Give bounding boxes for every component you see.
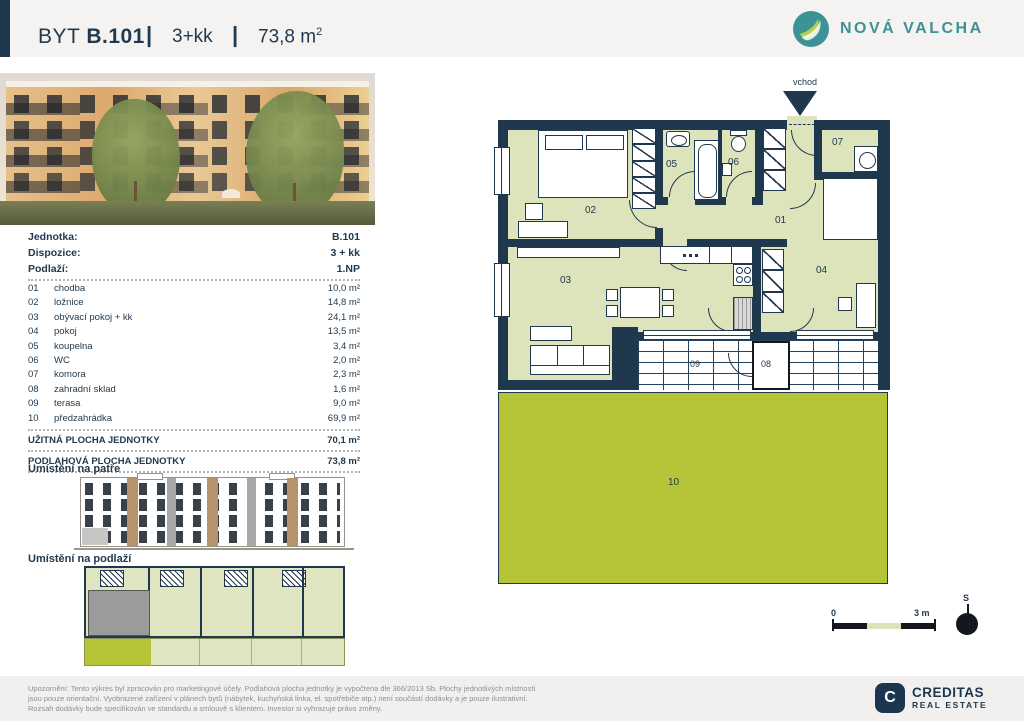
room-area: 13,5 m² (328, 326, 360, 337)
terrace-window (643, 330, 751, 340)
washing-machine-drum (859, 152, 876, 169)
side-table (838, 297, 852, 311)
window (494, 147, 510, 195)
dotted-divider (28, 279, 360, 281)
room-number: 05 (28, 341, 54, 352)
room-number: 09 (28, 398, 54, 409)
meta-row: Podlaží:1.NP (28, 261, 360, 277)
photo-roofline (6, 81, 369, 87)
room-name: obývací pokoj + kk (54, 312, 328, 323)
scale-end-label: 3 m (914, 608, 930, 618)
compass-north-label: S (963, 593, 969, 603)
overview-unit-divider (302, 568, 304, 636)
meta-row: Jednotka:B.101 (28, 229, 360, 245)
meta-label: Dispozice: (28, 247, 81, 259)
coffee-table (530, 326, 572, 341)
room-label-04: 04 (816, 265, 827, 276)
sofa-cushion-divider (557, 346, 558, 366)
kitchen-sink-dots (683, 254, 699, 257)
dotted-divider (28, 429, 360, 431)
wall-segment (655, 120, 663, 200)
scale-bar (833, 623, 935, 629)
room-name: WC (54, 355, 333, 366)
bed-room04 (823, 178, 878, 240)
garden (498, 392, 888, 584)
stove-burner (744, 267, 751, 274)
elevation-pilaster (127, 478, 138, 546)
wardrobe-cell (632, 193, 656, 209)
wall-segment (498, 195, 508, 263)
floorplan: vchod (490, 75, 1024, 655)
title-separator-1: | (146, 22, 152, 48)
section-heading-level: Umístění na podlaží (28, 553, 131, 565)
brand-name: NOVÁ VALCHA (840, 20, 984, 38)
header-accent-strip (0, 0, 10, 57)
room-row: 10předzahrádka69,9 m² (28, 413, 360, 427)
creditas-name: CREDITAS (912, 685, 984, 700)
wardrobe-cell (762, 249, 784, 270)
wardrobe-cell (632, 161, 656, 177)
room-row: 08zahradní sklad1,6 m² (28, 384, 360, 398)
terrace-door-threshold (756, 335, 792, 336)
room-row: 06WC2,0 m² (28, 355, 360, 369)
overview-stair-core (224, 570, 248, 587)
room-label-01: 01 (775, 215, 786, 226)
closet-cell (763, 128, 786, 149)
room-area: 24,1 m² (328, 312, 360, 323)
room-area: 2,0 m² (333, 355, 360, 366)
scale-start-label: 0 (831, 608, 836, 618)
room-name: ložnice (54, 297, 328, 308)
footer-bar: Upozornění: Tento výkres byl zpracován p… (0, 676, 1024, 721)
room-area: 69,9 m² (328, 413, 360, 424)
wardrobe-cell (632, 177, 656, 193)
room-label-06: 06 (728, 157, 739, 168)
room-number: 02 (28, 297, 54, 308)
room-number: 10 (28, 413, 54, 424)
room-number: 03 (28, 312, 54, 323)
room-label-08: 08 (761, 359, 771, 369)
washing-machine (854, 146, 878, 172)
room-label-03: 03 (560, 275, 571, 286)
brand-leaf-icon (792, 10, 830, 48)
stove (733, 264, 753, 286)
unit-id: B.101 (86, 25, 145, 48)
room-row: 01chodba10,0 m² (28, 283, 360, 297)
total-area: 70,1 m² (327, 435, 360, 446)
disclaimer-line: jsou pouze orientační. Vyobrazené zaříze… (28, 694, 708, 704)
room-area: 2,3 m² (333, 369, 360, 380)
desk (518, 221, 568, 238)
disclaimer-line: Rozsah dodávky bude specifikován ve stan… (28, 704, 708, 714)
room-row: 04pokoj13,5 m² (28, 326, 360, 340)
room-name: terasa (54, 398, 333, 409)
washbasin-bowl (671, 135, 687, 146)
floor-overview (84, 566, 345, 666)
elevation-gray-band (247, 478, 256, 546)
meta-row: Dispozice:3 + kk (28, 245, 360, 261)
meta-label: Jednotka: (28, 231, 78, 243)
room-area: 9,0 m² (333, 398, 360, 409)
desk-room04 (856, 283, 876, 328)
dining-table (620, 287, 660, 318)
room-number: 04 (28, 326, 54, 337)
room-number: 01 (28, 283, 54, 294)
wardrobe-cell (632, 128, 656, 144)
overview-garden-divider (199, 639, 200, 665)
room-label-07: 07 (832, 137, 843, 148)
overview-stair-core (100, 570, 124, 587)
total-area: 73,8 m² (327, 456, 360, 467)
room-row: 05koupelna3,4 m² (28, 341, 360, 355)
chair (606, 305, 618, 317)
brand-logo (792, 10, 830, 48)
total-row: UŽITNÁ PLOCHA JEDNOTKY70,1 m² (28, 433, 360, 448)
room-row: 07komora2,3 m² (28, 369, 360, 383)
elevation-roof-tab (137, 473, 163, 480)
unit-area: 73,8 m2 (258, 26, 322, 48)
counter-divider (731, 247, 732, 263)
photo-hedge (0, 201, 375, 225)
total-label: UŽITNÁ PLOCHA JEDNOTKY (28, 435, 160, 446)
creditas-subtitle: REAL ESTATE (912, 700, 987, 710)
room-name: předzahrádka (54, 413, 328, 424)
room-row: 03obývací pokoj + kk24,1 m² (28, 312, 360, 326)
bathtub (694, 140, 719, 200)
wall-segment (755, 120, 763, 205)
room-number: 07 (28, 369, 54, 380)
overview-garden-divider (301, 639, 302, 665)
kitchen-counter (660, 246, 753, 264)
counter-divider (709, 247, 710, 263)
entrance-threshold (789, 124, 815, 125)
creditas-logo: C CREDITAS REAL ESTATE (875, 683, 1015, 715)
room-area: 3,4 m² (333, 341, 360, 352)
room-row: 09terasa9,0 m² (28, 398, 360, 412)
stove-burner (744, 276, 751, 283)
toilet-bowl (731, 136, 746, 152)
overview-garden-divider (251, 639, 252, 665)
sideboard (517, 247, 620, 258)
chair (662, 289, 674, 301)
overview-garden-highlight (85, 639, 151, 665)
disclaimer: Upozornění: Tento výkres byl zpracován p… (28, 684, 708, 714)
elevation-gray-band (167, 478, 176, 546)
building-photo (0, 73, 375, 225)
room-area: 1,6 m² (333, 384, 360, 395)
scale-bar-segment (833, 623, 867, 629)
scale-bar-segment (901, 623, 935, 629)
room-name: zahradní sklad (54, 384, 333, 395)
elevation-unit-highlight (82, 528, 108, 545)
unit-area-value: 73,8 m (258, 26, 316, 47)
overview-stair-core (160, 570, 184, 587)
fridge (733, 297, 753, 330)
overview-unit-divider (252, 568, 254, 636)
unit-prefix: BYT (38, 25, 80, 48)
overview-unit-highlight (88, 590, 150, 636)
overview-unit-divider (200, 568, 202, 636)
meta-value: 1.NP (337, 263, 360, 275)
photo-umbrella (222, 189, 240, 198)
closet-cell (763, 170, 786, 191)
header-bar: BYT B.101 | 3+kk | 73,8 m2 NOVÁ VALCHA (0, 0, 1024, 57)
wall-segment (498, 239, 663, 247)
sofa-backrest (531, 365, 609, 374)
compass-icon (956, 613, 978, 635)
meta-value: 3 + kk (331, 247, 361, 259)
stove-burner (736, 267, 743, 274)
window (494, 263, 510, 317)
scale-bar-tick (832, 619, 834, 631)
room-name: koupelna (54, 341, 333, 352)
wall-segment (878, 120, 890, 390)
unit-disposition: 3+kk (172, 26, 213, 48)
title-separator-2: | (232, 22, 238, 48)
meta-value: B.101 (332, 231, 360, 243)
room-label-05: 05 (666, 159, 677, 170)
wall-segment (612, 327, 638, 390)
creditas-letter: C (884, 689, 896, 707)
entrance-vestibule (787, 116, 817, 130)
room-area: 14,8 m² (328, 297, 360, 308)
terrace-window (796, 330, 874, 340)
wardrobe-cell (762, 270, 784, 292)
disclaimer-line: Upozornění: Tento výkres byl zpracován p… (28, 684, 708, 694)
overview-building (84, 566, 345, 638)
chair (606, 289, 618, 301)
section-heading-floor: Umístění na patře (28, 463, 120, 475)
elevation-ground-line (74, 548, 354, 550)
room-name: chodba (54, 283, 328, 294)
creditas-monogram: C (875, 683, 905, 713)
photo-balcony-stack-1 (6, 89, 80, 203)
wardrobe-cell (762, 292, 784, 313)
pillow (545, 135, 583, 150)
stove-burner (736, 276, 743, 283)
room-name: komora (54, 369, 333, 380)
scale-bar-tick (934, 619, 936, 631)
entrance-arrow-icon (783, 91, 817, 116)
dotted-divider (28, 450, 360, 452)
room-number: 06 (28, 355, 54, 366)
room-number: 08 (28, 384, 54, 395)
bed-double (538, 130, 628, 198)
chair (662, 305, 674, 317)
elevation-pilaster (287, 478, 298, 546)
wardrobe-cell (632, 144, 656, 161)
washbasin (666, 131, 690, 147)
overview-garden-band (84, 638, 345, 666)
meta-label: Podlaží: (28, 263, 68, 275)
room-name: pokoj (54, 326, 328, 337)
room-row: 02ložnice14,8 m² (28, 297, 360, 311)
wall-segment (498, 120, 508, 147)
elevation-pilaster (207, 478, 218, 546)
unit-area-sup: 2 (316, 26, 322, 38)
wall-segment (753, 247, 761, 332)
room-label-02: 02 (585, 205, 596, 216)
entrance-label: vchod (785, 77, 825, 87)
page-title: BYT B.101 (38, 25, 145, 49)
nightstand (525, 203, 543, 220)
unit-info-table: Jednotka:B.101 Dispozice:3 + kk Podlaží:… (28, 229, 360, 475)
closet-cell (763, 149, 786, 170)
pillow (586, 135, 624, 150)
brochure-page: BYT B.101 | 3+kk | 73,8 m2 NOVÁ VALCHA (0, 0, 1024, 721)
wall-segment (752, 197, 763, 205)
sofa (530, 345, 610, 375)
room-label-09: 09 (690, 359, 700, 369)
building-elevation (80, 477, 345, 547)
bathtub-basin (698, 144, 717, 198)
sofa-cushion-divider (583, 346, 584, 366)
room-label-10: 10 (668, 477, 679, 488)
room-area: 10,0 m² (328, 283, 360, 294)
